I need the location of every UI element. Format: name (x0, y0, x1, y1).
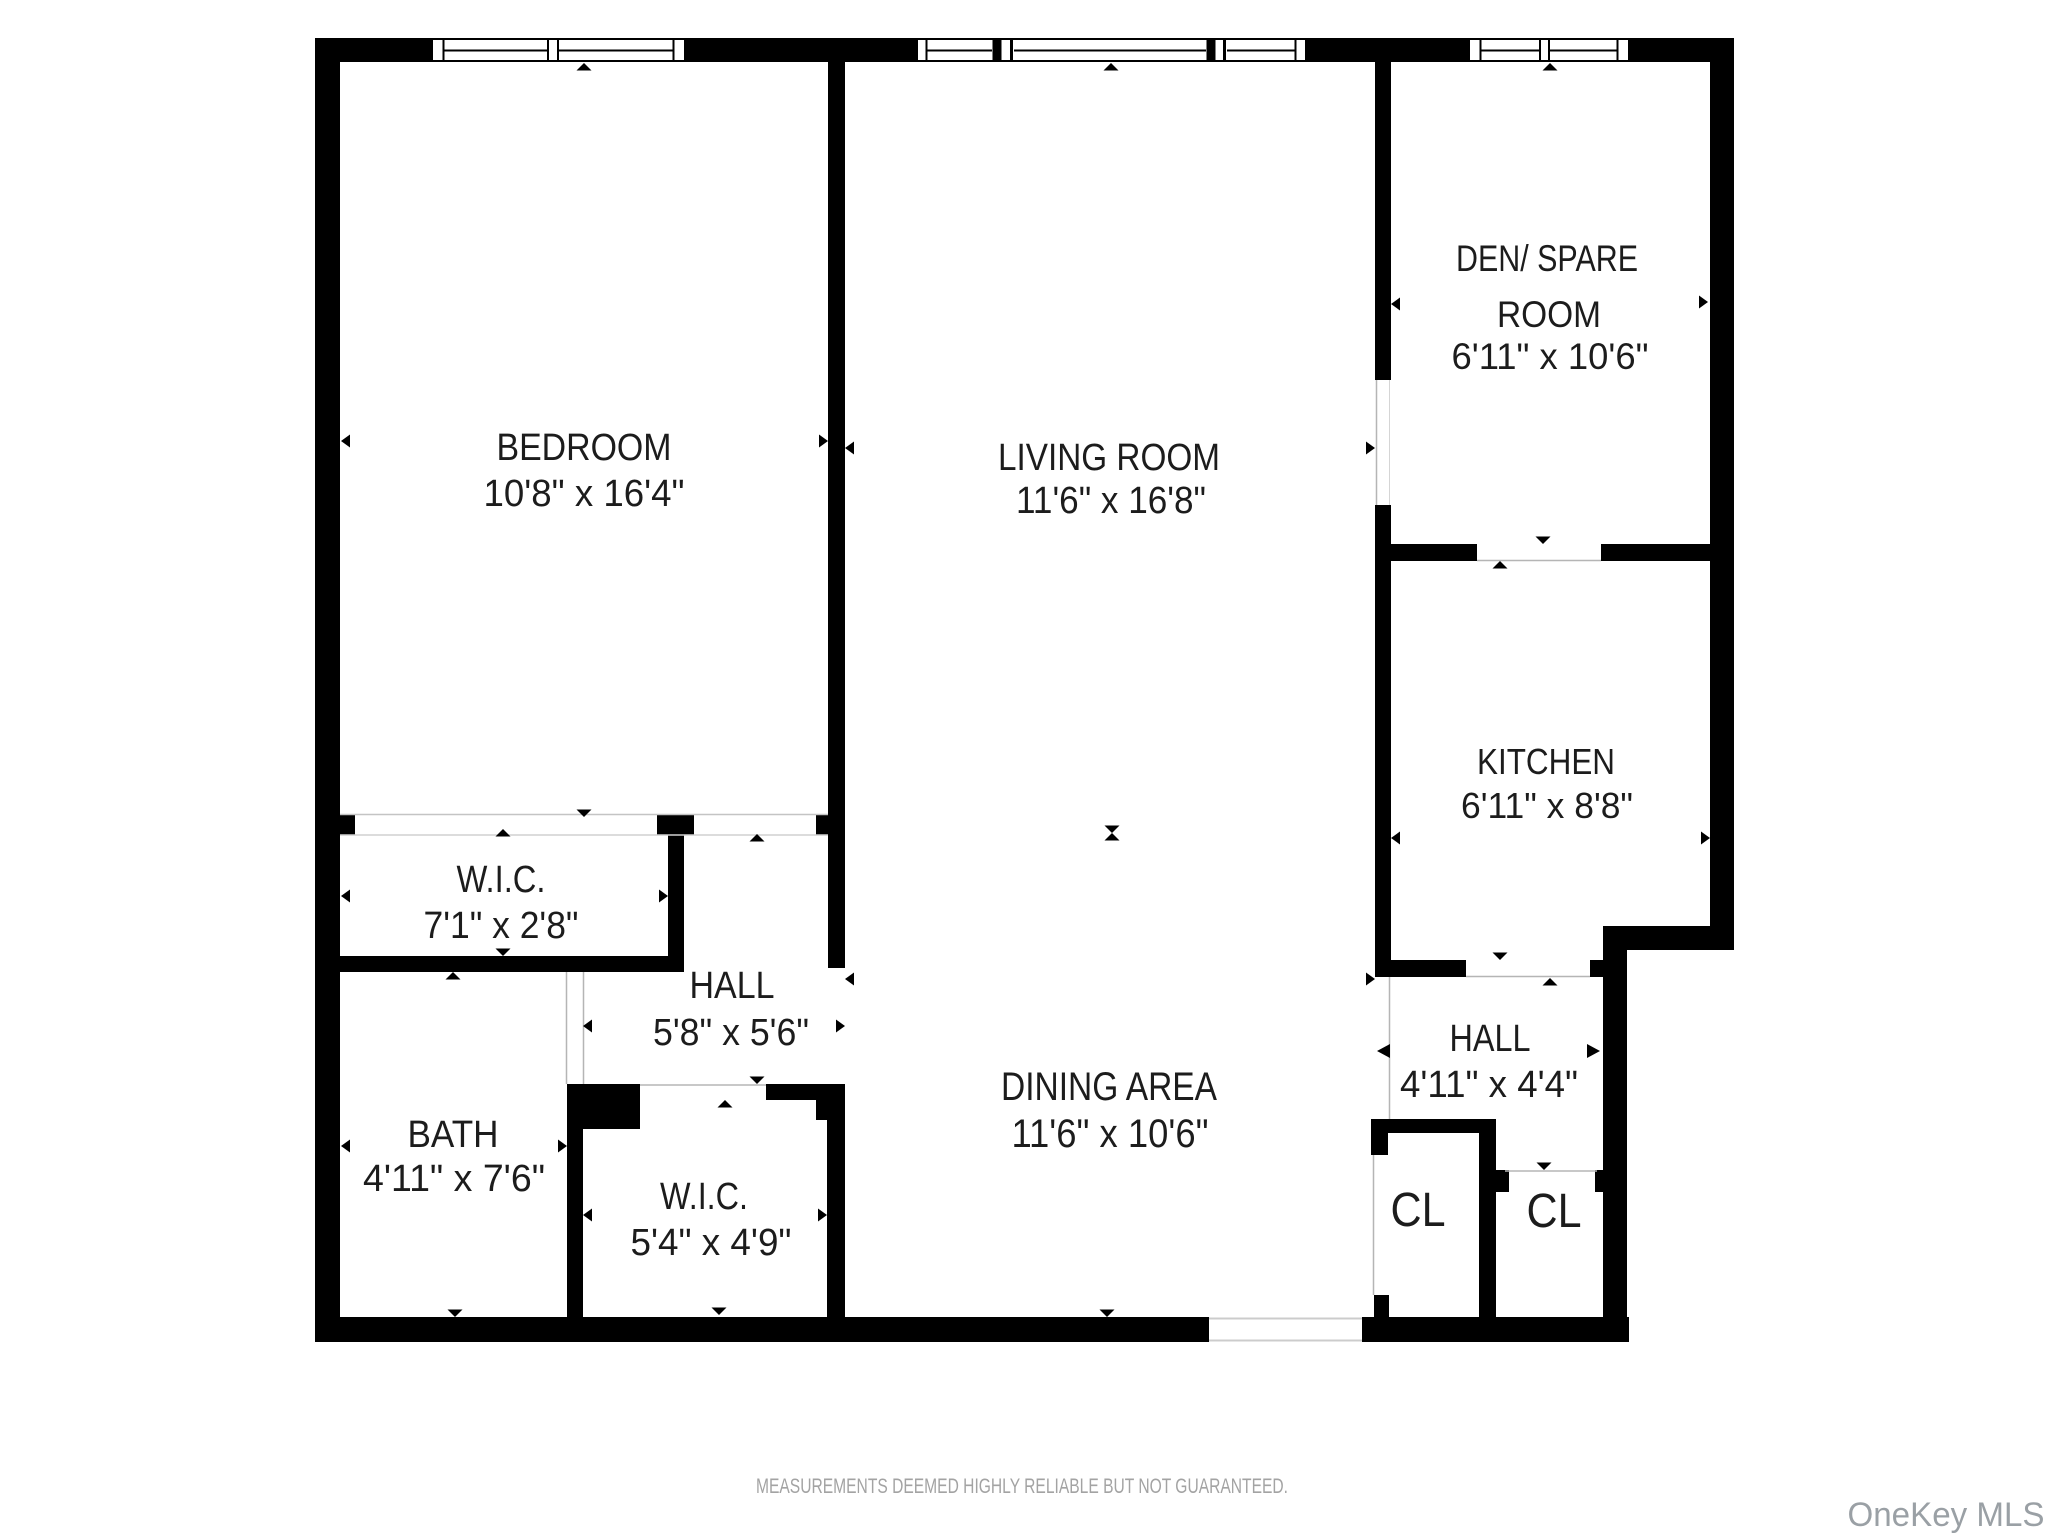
svg-text:W.I.C.: W.I.C. (457, 859, 546, 901)
svg-text:BEDROOM: BEDROOM (497, 427, 672, 469)
svg-text:6'11" x 8'8": 6'11" x 8'8" (1461, 785, 1633, 826)
svg-text:6'11" x 10'6": 6'11" x 10'6" (1452, 336, 1649, 377)
svg-text:ROOM: ROOM (1497, 294, 1601, 335)
svg-text:KITCHEN: KITCHEN (1477, 741, 1615, 782)
svg-text:MEASUREMENTS DEEMED HIGHLY REL: MEASUREMENTS DEEMED HIGHLY RELIABLE BUT … (756, 1475, 1288, 1498)
svg-text:11'6" x 16'8": 11'6" x 16'8" (1016, 480, 1206, 522)
svg-text:HALL: HALL (1450, 1018, 1531, 1060)
svg-text:HALL: HALL (690, 965, 775, 1007)
svg-text:DEN/ SPARE: DEN/ SPARE (1456, 238, 1638, 279)
svg-text:7'1" x 2'8": 7'1" x 2'8" (424, 905, 579, 947)
svg-text:DINING AREA: DINING AREA (1001, 1065, 1217, 1109)
svg-text:4'11" x 7'6": 4'11" x 7'6" (363, 1158, 545, 1200)
svg-text:OneKey MLS: OneKey MLS (1848, 1496, 2045, 1534)
svg-text:CL: CL (1527, 1185, 1582, 1238)
svg-text:CL: CL (1391, 1184, 1446, 1237)
svg-text:11'6" x 10'6": 11'6" x 10'6" (1012, 1112, 1209, 1156)
svg-text:4'11" x 4'4": 4'11" x 4'4" (1400, 1064, 1578, 1106)
svg-text:LIVING ROOM: LIVING ROOM (998, 437, 1220, 479)
svg-text:10'8" x 16'4": 10'8" x 16'4" (484, 473, 685, 515)
svg-text:5'4" x 4'9": 5'4" x 4'9" (631, 1222, 792, 1264)
svg-text:5'8" x 5'6": 5'8" x 5'6" (653, 1012, 809, 1054)
svg-text:BATH: BATH (408, 1114, 499, 1156)
svg-text:W.I.C.: W.I.C. (660, 1176, 748, 1218)
